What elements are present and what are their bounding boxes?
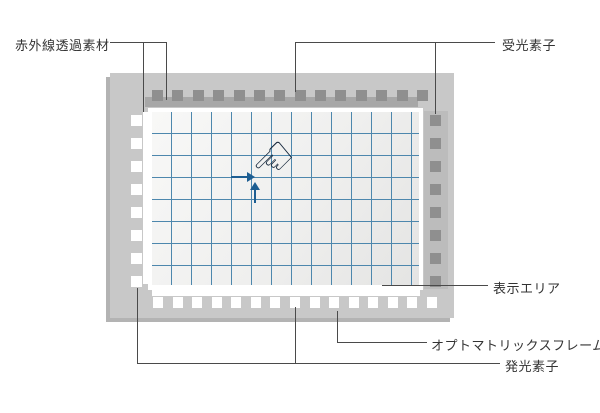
emitter-element-icon: [368, 297, 378, 308]
emitter-element-icon: [173, 297, 183, 308]
leader-line: [295, 42, 296, 92]
label-display-area: 表示エリア: [493, 278, 561, 297]
receiver-element-icon: [254, 90, 265, 101]
emitter-element-icon: [131, 253, 142, 264]
emitter-element-icon: [131, 138, 142, 149]
leader-line: [337, 311, 338, 342]
beam-arrow-up-icon: [254, 190, 256, 203]
receiver-element-icon: [430, 207, 441, 218]
emitter-element-icon: [329, 297, 339, 308]
emitter-element-icon: [153, 297, 163, 308]
receiver-element-icon: [376, 90, 387, 101]
left-emitter-col: [131, 115, 142, 287]
label-frame: オプトマトリックスフレーム: [431, 335, 600, 354]
receiver-element-icon: [172, 90, 183, 101]
receiver-element-icon: [213, 90, 224, 101]
leader-line: [143, 42, 144, 112]
beam-arrow-up-head-icon: [250, 182, 260, 190]
emitter-element-icon: [131, 115, 142, 126]
label-receiver: 受光素子: [502, 35, 556, 54]
receiver-element-icon: [430, 230, 441, 241]
leader-line: [137, 363, 500, 364]
leader-line: [435, 42, 436, 114]
leader-line: [295, 42, 495, 43]
emitter-element-icon: [427, 297, 437, 308]
emitter-element-icon: [349, 297, 359, 308]
receiver-element-icon: [430, 184, 441, 195]
emitter-element-icon: [131, 230, 142, 241]
receiver-element-icon: [397, 90, 408, 101]
ir-transmitting-bar-bottom: [152, 290, 420, 296]
emitter-element-icon: [388, 297, 398, 308]
leader-line: [337, 342, 427, 343]
emitter-element-icon: [131, 184, 142, 195]
emitter-element-icon: [310, 297, 320, 308]
receiver-element-icon: [417, 90, 428, 101]
emitter-element-icon: [251, 297, 261, 308]
emitter-element-icon: [131, 276, 142, 287]
right-receiver-col: [430, 115, 441, 287]
emitter-element-icon: [212, 297, 222, 308]
receiver-element-icon: [152, 90, 163, 101]
receiver-element-icon: [295, 90, 306, 101]
emitter-element-icon: [231, 297, 241, 308]
receiver-element-icon: [356, 90, 367, 101]
leader-line: [110, 42, 167, 43]
emitter-element-icon: [270, 297, 280, 308]
receiver-element-icon: [234, 90, 245, 101]
leader-line: [166, 42, 167, 100]
label-emitter: 発光素子: [505, 356, 559, 375]
beam-arrow-right-head-icon: [247, 172, 255, 182]
leader-line: [137, 288, 138, 363]
receiver-element-icon: [430, 253, 441, 264]
receiver-element-icon: [193, 90, 204, 101]
receiver-element-icon: [430, 161, 441, 172]
emitter-element-icon: [131, 161, 142, 172]
opto-matrix-diagram: ☜ 赤外線透過素材 受光素子 表示エリア オプトマトリックスフレーム 発光素子: [0, 0, 600, 413]
emitter-element-icon: [192, 297, 202, 308]
receiver-element-icon: [315, 90, 326, 101]
emitter-element-icon: [131, 207, 142, 218]
leader-line: [382, 285, 488, 286]
label-ir-material: 赤外線透過素材: [15, 35, 110, 54]
receiver-element-icon: [335, 90, 346, 101]
top-receiver-row: [152, 90, 428, 101]
receiver-element-icon: [274, 90, 285, 101]
receiver-element-icon: [430, 138, 441, 149]
emitter-element-icon: [407, 297, 417, 308]
beam-arrow-right-icon: [231, 176, 247, 178]
leader-line: [295, 307, 296, 363]
receiver-element-icon: [430, 115, 441, 126]
